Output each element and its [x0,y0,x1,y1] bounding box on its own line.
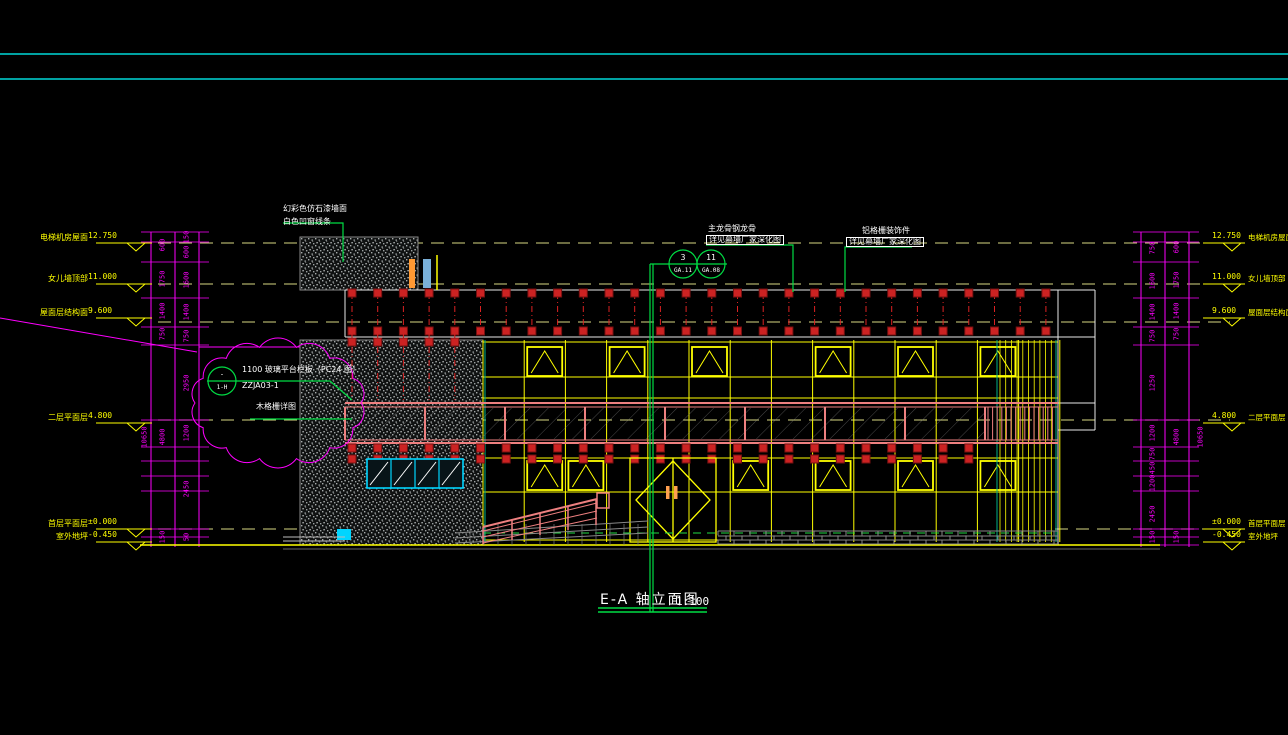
level-label-left: 二层平面层 [24,414,88,422]
cad-drawing-canvas[interactable]: 幻彩色仿石漆墙面 白色凹窗线条 主龙骨钢龙骨 详见幕墙厂家深化图 铝格栅装饰件 … [0,0,1288,735]
detail-bubble-1-number: 3 [681,254,686,262]
walkway-band [345,403,1058,443]
level-label-right: 首层平面层 [1248,520,1286,528]
dimension-value: 1250 [1150,375,1157,392]
level-value-left: ±0.000 [88,518,117,526]
dimension-value: 600 [160,239,167,252]
dimension-value: 150 [1174,531,1181,544]
level-label-left: 室外地坪 [24,533,88,541]
level-label-right: 屋面层结构面 [1248,309,1288,317]
dimension-value: 600 [184,246,191,259]
dimension-value: 1200 [184,425,191,442]
level-value-right: 4.800 [1212,412,1236,420]
dimension-value: 150 [184,231,191,244]
annotation-grille-detail: 木格栅详图 [256,403,296,411]
drawing-scale: 1:100 [676,596,709,607]
level-value-right: -0.450 [1212,531,1241,539]
dimension-value: 4800 [160,429,167,446]
dimension-value: 1200 [1150,475,1157,492]
dimension-value: 1400 [1150,304,1157,321]
detail-bubble-2-number: 11 [706,254,716,262]
entrance-doors [630,458,716,542]
dimension-value: 150 [1150,531,1157,544]
annotation-grille-line1: 铝格栅装饰件 [862,227,910,235]
dimension-value: 150 [160,531,167,544]
level-markers [96,243,1245,550]
dimension-value: 750 [1150,242,1157,255]
elevation-linework [0,0,1288,735]
level-label-right: 女儿墙顶部 [1248,275,1286,283]
detail-bubble-3-sheet: 1-H [217,385,228,391]
dimension-value: 750 [184,330,191,343]
dimension-value: 750 [1174,328,1181,341]
dimension-value: 10650 [1198,426,1205,447]
dimension-value: 750 [1150,448,1157,461]
dimension-value: 1400 [184,304,191,321]
annotation-wall-finish-line2: 白色凹窗线条 [283,218,331,226]
detail-bubble-3-number: - [220,372,224,379]
detail-bubble-2-sheet: GA.08 [702,268,720,274]
dimension-value: 450 [1150,462,1157,475]
annotation-keel-line2: 详见幕墙厂家深化图 [706,235,784,245]
annotation-grille-line2: 详见幕墙厂家深化图 [846,237,924,247]
dimension-value: 1200 [1150,425,1157,442]
dimension-value: 10650 [142,426,149,447]
dimension-value: 1400 [160,303,167,320]
level-label-left: 首层平面层 [24,520,88,528]
level-value-left: 4.800 [88,412,112,420]
level-value-right: ±0.000 [1212,518,1241,526]
level-value-right: 9.600 [1212,307,1236,315]
dimension-value: 600 [1174,241,1181,254]
dimension-value: 750 [1150,330,1157,343]
level-value-left: 12.750 [88,232,117,240]
dimension-value: 1600 [1150,273,1157,290]
sheet-border-lines [0,54,1288,79]
dimension-value: 2450 [184,481,191,498]
curtain-wall-grid [483,340,1060,542]
level-label-right: 二层平面层 [1248,414,1286,422]
level-label-left: 女儿墙顶部 [24,275,88,283]
annotation-railing-line1: 1100 玻璃平台栏板（PC24 图） [242,366,360,374]
dimension-value: 750 [160,328,167,341]
level-value-left: 9.600 [88,307,112,315]
annotation-wall-finish-line1: 幻彩色仿石漆墙面 [283,205,347,213]
dimension-value: 1750 [1174,272,1181,289]
right-mullion-cluster [485,340,1056,542]
level-label-right: 电梯机房屋面 [1248,234,1288,242]
detail-bubble-1-sheet: GA.11 [674,268,692,274]
annotation-railing-line2: ZZJA03-1 [242,382,279,390]
dimension-value: 50 [184,533,191,541]
level-label-left: 电梯机房屋面 [24,234,88,242]
level-value-left: 11.000 [88,273,117,281]
annotation-keel-line1: 主龙骨钢龙骨 [708,225,756,233]
dimension-value: 2950 [184,375,191,392]
dimension-value: 1750 [160,271,167,288]
level-value-right: 12.750 [1212,232,1241,240]
dimension-value: 1600 [184,272,191,289]
level-label-left: 屋面层结构面 [24,309,88,317]
dimension-value: 1400 [1174,303,1181,320]
dimension-value: 4800 [1174,429,1181,446]
dimension-value: 2450 [1150,506,1157,523]
level-value-left: -0.450 [88,531,117,539]
level-value-right: 11.000 [1212,273,1241,281]
level-label-right: 室外地坪 [1248,533,1278,541]
stone-hatch-wall [300,237,483,545]
